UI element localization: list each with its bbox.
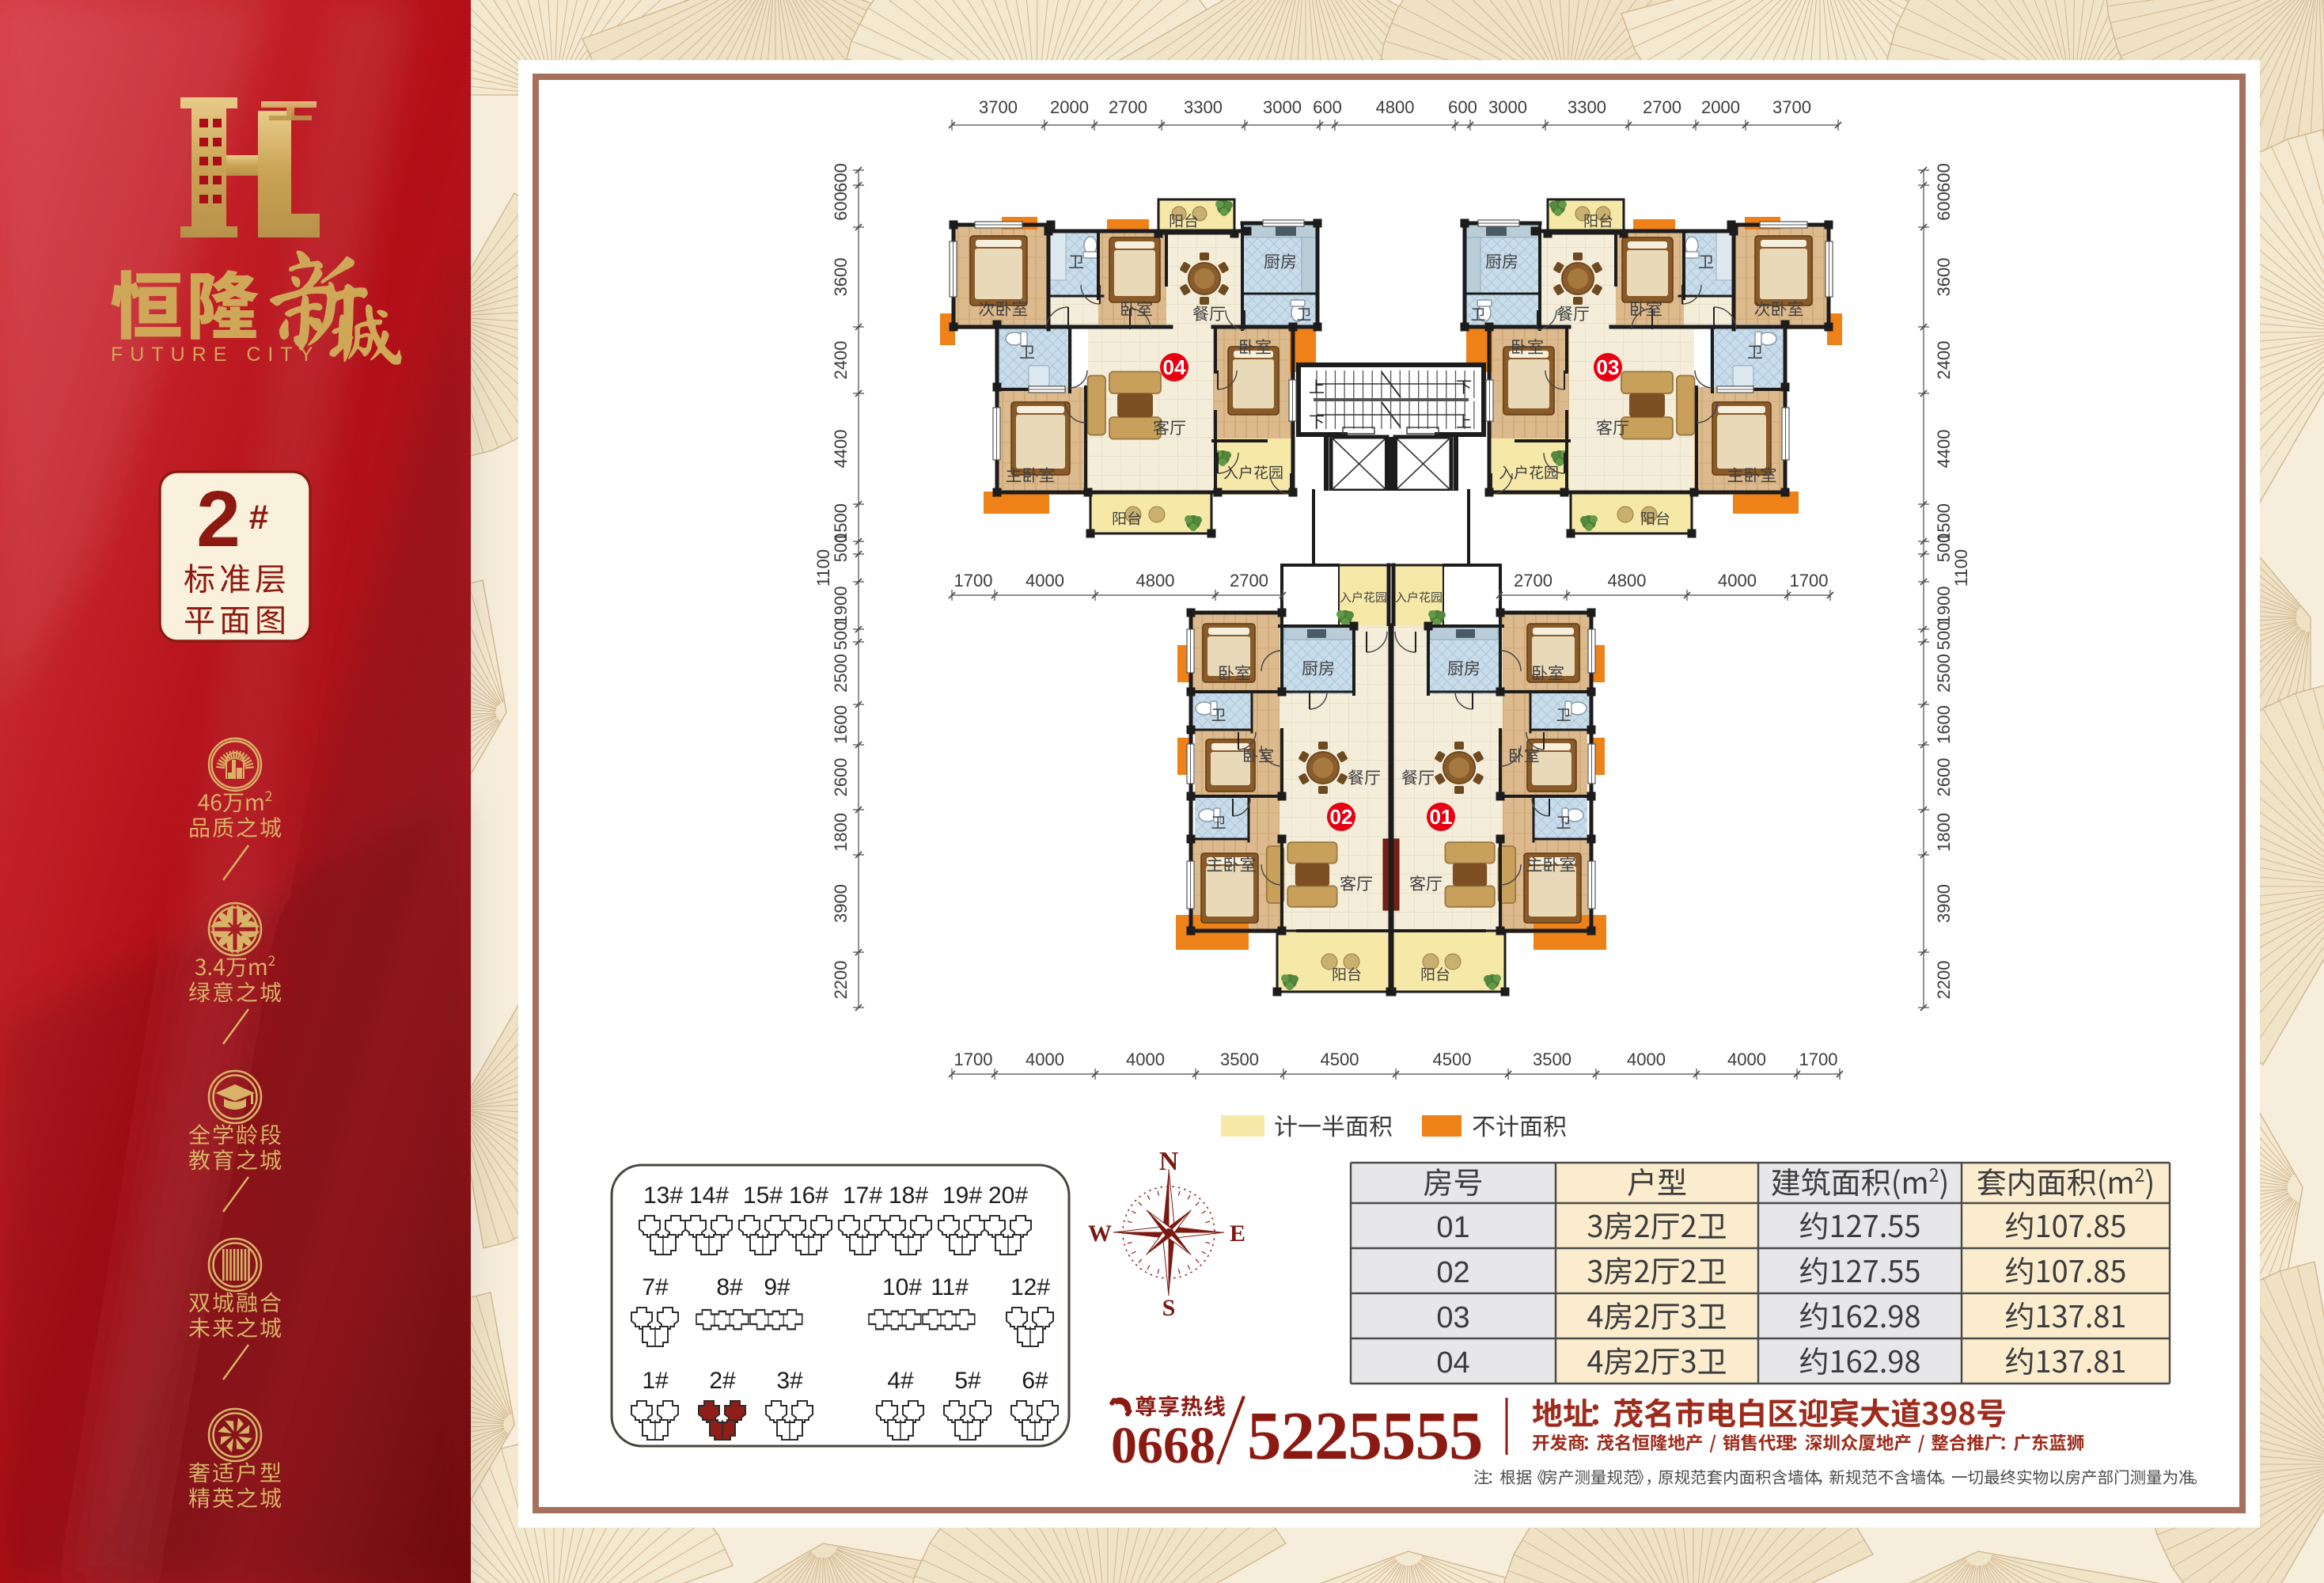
svg-text:2200: 2200: [831, 961, 851, 1000]
svg-text:600: 600: [1934, 192, 1954, 221]
svg-text:03: 03: [1436, 1301, 1469, 1334]
svg-text:1900: 1900: [1934, 587, 1954, 625]
svg-text:4000: 4000: [1718, 571, 1757, 590]
svg-text:9#: 9#: [764, 1274, 790, 1300]
svg-text:1600: 1600: [1934, 705, 1954, 744]
svg-text:2600: 2600: [1934, 758, 1954, 797]
svg-text:600: 600: [831, 192, 851, 221]
svg-text:#: #: [249, 498, 268, 537]
svg-text:02: 02: [1330, 805, 1353, 829]
svg-text:14#: 14#: [689, 1183, 729, 1209]
svg-text:3600: 3600: [1934, 258, 1954, 297]
svg-text:S: S: [1162, 1295, 1176, 1321]
svg-text:1600: 1600: [831, 705, 851, 744]
svg-text:2700: 2700: [1230, 571, 1268, 590]
svg-text:5#: 5#: [954, 1368, 981, 1394]
svg-text:3500: 3500: [1220, 1050, 1259, 1069]
svg-text:17#: 17#: [843, 1183, 882, 1209]
svg-text:2700: 2700: [1109, 97, 1147, 117]
svg-text:1800: 1800: [1934, 813, 1954, 852]
svg-text:500: 500: [831, 621, 851, 651]
svg-text:2200: 2200: [1934, 961, 1954, 1000]
svg-text:FUTURE CITY: FUTURE CITY: [111, 344, 320, 366]
svg-text:2400: 2400: [831, 341, 851, 380]
svg-text:2400: 2400: [1934, 341, 1954, 380]
svg-text:600: 600: [1448, 97, 1477, 117]
svg-text:2000: 2000: [1701, 97, 1740, 117]
svg-text:1700: 1700: [1790, 571, 1829, 590]
svg-text:0668: 0668: [1111, 1417, 1215, 1475]
svg-text:4000: 4000: [1126, 1050, 1165, 1069]
svg-text:3700: 3700: [979, 97, 1018, 117]
svg-text:500: 500: [831, 533, 851, 563]
svg-text:3900: 3900: [831, 884, 851, 923]
svg-text:4000: 4000: [1026, 571, 1064, 590]
svg-text:18#: 18#: [889, 1183, 928, 1209]
svg-text:4000: 4000: [1026, 1050, 1064, 1069]
svg-text:8#: 8#: [716, 1274, 743, 1300]
svg-text:12#: 12#: [1010, 1274, 1050, 1300]
svg-text:600: 600: [1313, 97, 1342, 117]
svg-text:6#: 6#: [1022, 1368, 1048, 1394]
svg-text:600: 600: [1934, 163, 1954, 192]
svg-text:4000: 4000: [1727, 1050, 1766, 1069]
svg-text:E: E: [1230, 1220, 1245, 1247]
svg-text:10#: 10#: [882, 1274, 922, 1300]
svg-text:2700: 2700: [1643, 97, 1681, 117]
svg-text:4400: 4400: [1934, 430, 1954, 469]
svg-text:4800: 4800: [1376, 97, 1415, 117]
svg-text:2#: 2#: [709, 1368, 736, 1394]
svg-text:1700: 1700: [954, 1050, 993, 1069]
svg-text:04: 04: [1436, 1346, 1469, 1380]
svg-text:15#: 15#: [743, 1183, 783, 1209]
svg-text:4800: 4800: [1608, 571, 1647, 590]
svg-text:W: W: [1088, 1220, 1112, 1247]
svg-text:2: 2: [196, 475, 241, 564]
svg-text:19#: 19#: [942, 1183, 982, 1209]
svg-text:600: 600: [831, 163, 851, 192]
svg-text:2500: 2500: [831, 654, 851, 693]
svg-text:01: 01: [1430, 805, 1453, 829]
svg-text:3000: 3000: [1263, 97, 1302, 117]
svg-text:4#: 4#: [887, 1368, 914, 1394]
svg-text:01: 01: [1436, 1211, 1469, 1244]
svg-text:7#: 7#: [642, 1274, 669, 1300]
svg-text:11#: 11#: [931, 1274, 969, 1300]
svg-text:1100: 1100: [813, 549, 833, 587]
svg-text:3300: 3300: [1184, 97, 1223, 117]
svg-text:16#: 16#: [789, 1183, 828, 1209]
svg-text:5225555: 5225555: [1247, 1397, 1483, 1474]
svg-text:20#: 20#: [988, 1183, 1028, 1209]
svg-text:4000: 4000: [1627, 1050, 1666, 1069]
svg-text:2700: 2700: [1514, 571, 1552, 590]
svg-text:2000: 2000: [1050, 97, 1089, 117]
svg-text:13#: 13#: [643, 1183, 683, 1209]
svg-text:1100: 1100: [1951, 549, 1971, 587]
svg-text:3#: 3#: [776, 1368, 803, 1394]
svg-text:1900: 1900: [831, 587, 851, 625]
svg-text:03: 03: [1597, 355, 1620, 379]
svg-text:3300: 3300: [1568, 97, 1606, 117]
svg-text:04: 04: [1163, 355, 1186, 379]
svg-text:4500: 4500: [1321, 1050, 1359, 1069]
svg-text:2500: 2500: [1934, 654, 1954, 693]
svg-text:4800: 4800: [1136, 571, 1175, 590]
svg-text:3500: 3500: [1533, 1050, 1571, 1069]
svg-text:1700: 1700: [954, 571, 993, 590]
svg-text:4400: 4400: [831, 430, 851, 469]
svg-text:1800: 1800: [831, 813, 851, 852]
svg-text:3900: 3900: [1934, 884, 1954, 923]
svg-text:N: N: [1159, 1147, 1179, 1176]
svg-text:2600: 2600: [831, 758, 851, 797]
svg-text:3000: 3000: [1488, 97, 1527, 117]
svg-text:500: 500: [1934, 621, 1954, 651]
svg-text:4500: 4500: [1433, 1050, 1472, 1069]
svg-text:3700: 3700: [1772, 97, 1811, 117]
svg-text:1#: 1#: [642, 1368, 669, 1394]
svg-text:1700: 1700: [1799, 1050, 1838, 1069]
svg-text:3600: 3600: [831, 258, 851, 297]
svg-text:02: 02: [1436, 1256, 1469, 1289]
